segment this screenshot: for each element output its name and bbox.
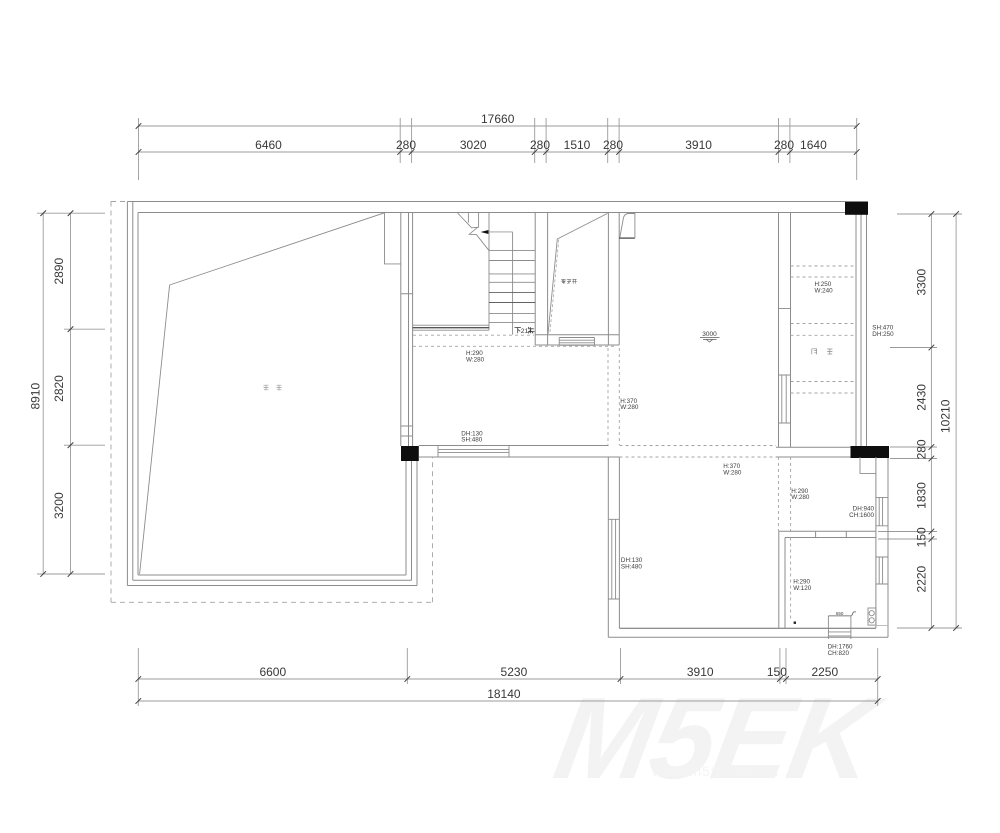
svg-text:DH:250: DH:250 — [872, 331, 894, 338]
svg-text:6460: 6460 — [255, 138, 282, 152]
svg-text:3020: 3020 — [460, 138, 487, 152]
svg-text:17660: 17660 — [481, 112, 515, 126]
svg-text:SH:480: SH:480 — [621, 564, 643, 571]
svg-text:W:240: W:240 — [815, 287, 834, 294]
svg-text:3000: 3000 — [702, 331, 717, 338]
svg-text:2430: 2430 — [915, 384, 929, 411]
svg-text:650: 650 — [836, 611, 844, 616]
svg-text:W:280: W:280 — [723, 469, 742, 476]
svg-text:CH:820: CH:820 — [828, 650, 850, 657]
svg-text:280: 280 — [603, 138, 623, 152]
svg-text:280: 280 — [774, 138, 794, 152]
svg-text:www.m5jz.com.cn: www.m5jz.com.cn — [651, 763, 779, 779]
svg-text:8910: 8910 — [29, 383, 43, 410]
svg-text:280: 280 — [396, 138, 416, 152]
svg-text:M5EK: M5EK — [546, 673, 893, 803]
svg-text:280: 280 — [915, 439, 929, 459]
svg-text:5230: 5230 — [501, 665, 528, 679]
svg-text:280: 280 — [530, 138, 550, 152]
svg-text:1640: 1640 — [800, 138, 827, 152]
svg-text:SH:480: SH:480 — [461, 437, 483, 444]
svg-text:W:280: W:280 — [466, 356, 485, 363]
svg-text:2890: 2890 — [52, 258, 66, 285]
svg-text:W:280: W:280 — [620, 404, 639, 411]
svg-text:CH:1600: CH:1600 — [849, 512, 874, 519]
svg-text:2820: 2820 — [52, 375, 66, 402]
svg-text:1510: 1510 — [564, 138, 591, 152]
svg-text:3300: 3300 — [915, 269, 929, 296]
svg-text:10210: 10210 — [939, 399, 953, 433]
svg-text:2220: 2220 — [915, 565, 929, 592]
svg-text:3200: 3200 — [52, 492, 66, 519]
svg-text:2250: 2250 — [811, 665, 838, 679]
svg-text:W:280: W:280 — [791, 494, 810, 501]
svg-text:1830: 1830 — [915, 482, 929, 509]
svg-text:21: 21 — [521, 328, 529, 335]
svg-text:18140: 18140 — [487, 687, 521, 701]
svg-text:3910: 3910 — [685, 138, 712, 152]
svg-text:150: 150 — [767, 665, 787, 679]
svg-text:150: 150 — [915, 527, 929, 547]
svg-text:3910: 3910 — [687, 665, 714, 679]
svg-text:6600: 6600 — [259, 665, 286, 679]
svg-text:W:120: W:120 — [793, 585, 812, 592]
